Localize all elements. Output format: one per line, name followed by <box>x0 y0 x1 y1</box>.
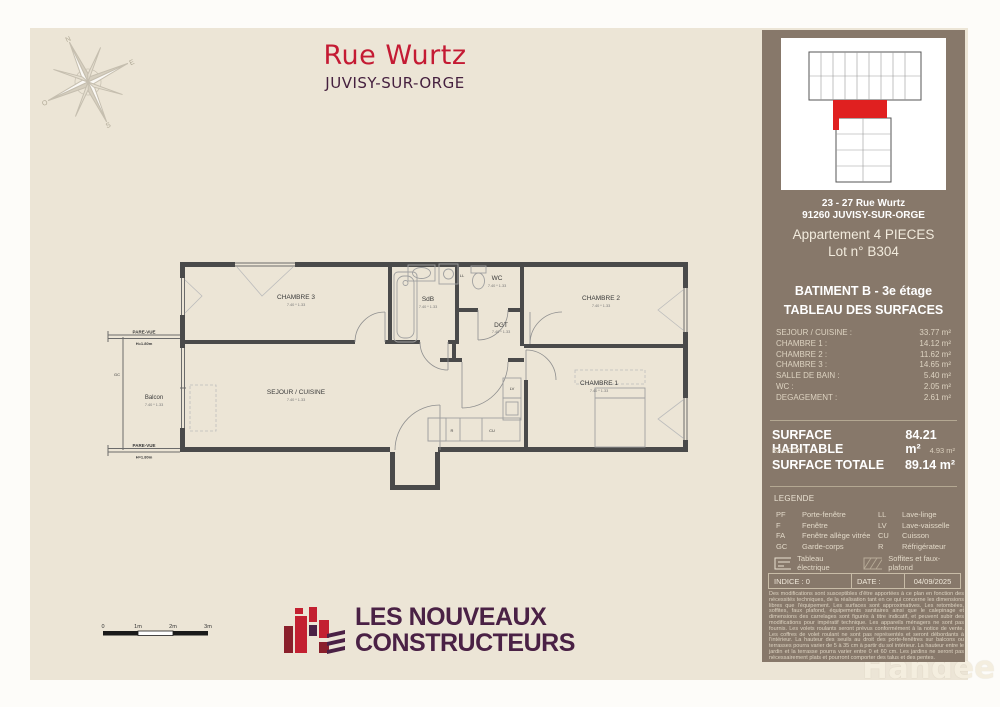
room-dims-wc: 7.40 * 1.33 <box>488 284 506 288</box>
logo-mark-icon <box>283 604 345 658</box>
apartment-type: Appartement 4 PIECES <box>762 226 965 243</box>
cu-label: CU <box>489 428 495 433</box>
table-row: WC :2.05 m² <box>776 382 951 393</box>
room-label-chambre2: CHAMBRE 2 <box>582 295 620 302</box>
legend-label: Réfrigérateur <box>902 542 954 553</box>
room-label-balcon: Balcon <box>145 395 163 401</box>
legend-label: Lave-linge <box>902 510 954 521</box>
compass-rose: N S E O <box>38 32 138 132</box>
pare-vue-bottom-label: PARE-VUE <box>133 443 156 448</box>
legend-code: GC <box>776 542 802 553</box>
date-label-cell: DATE : <box>851 574 904 588</box>
legend-code: R <box>878 542 902 553</box>
scale-tick-1: 1m <box>134 624 142 630</box>
compass-south-label: S <box>105 122 112 130</box>
panel-address-line2: 91260 JUVISY-SUR-ORGE <box>762 210 965 222</box>
balcon-label: BALCON : <box>772 446 807 455</box>
legend-title: LEGENDE <box>774 494 814 503</box>
developer-logo: LES NOUVEAUX CONSTRUCTEURS <box>283 604 575 658</box>
room-dims-sejour: 7.40 * 1.33 <box>287 398 305 402</box>
logo-line1: LES NOUVEAUX <box>355 604 575 630</box>
surface-totale-label: SURFACE TOTALE <box>772 458 884 472</box>
scale-bar: 0 1m 2m 3m <box>98 620 218 642</box>
soffit-hatch-icon <box>863 557 882 570</box>
legend-label: Porte-fenêtre <box>802 510 878 521</box>
surface-totale-value: 89.14 m² <box>905 458 955 472</box>
legend-label: Garde-corps <box>802 542 878 553</box>
soffit-label: Soffites et faux-plafond <box>888 554 954 572</box>
ll-label: LL <box>460 273 465 278</box>
legend-code: FA <box>776 531 802 542</box>
balcon-row: BALCON : 4.93 m² <box>772 446 955 455</box>
table-row: DEGAGEMENT :2.61 m² <box>776 393 951 404</box>
room-dims-chambre3: 7.40 * 1.33 <box>287 303 305 307</box>
panel-address-line1: 23 - 27 Rue Wurtz <box>762 198 965 210</box>
lv-label: LV <box>510 386 515 391</box>
room-dims-balcon: 7.40 * 1.33 <box>145 403 163 407</box>
scale-tick-3: 3m <box>204 624 212 630</box>
legend-label: Lave-vaisselle <box>902 521 954 532</box>
date-value: 04/09/2025 <box>914 577 952 586</box>
legend-code: CU <box>878 531 902 542</box>
fixtures <box>394 264 645 447</box>
r-label: R <box>451 428 454 433</box>
surface-table: SEJOUR / CUISINE :33.77 m² CHAMBRE 1 :14… <box>776 328 951 404</box>
legend-label: Fenêtre <box>802 521 878 532</box>
table-row: SEJOUR / CUISINE :33.77 m² <box>776 328 951 339</box>
indice-cell: INDICE : 0 <box>769 574 851 588</box>
fridge-icon <box>428 418 446 441</box>
legend-code: LV <box>878 521 902 532</box>
divider <box>770 420 957 421</box>
toilet-icon <box>471 266 486 273</box>
surface-totale-row: SURFACE TOTALE 89.14 m² <box>772 458 955 472</box>
room-label-chambre1: CHAMBRE 1 <box>580 380 618 387</box>
legend-code: PF <box>776 510 802 521</box>
room-label-sdb: SdB <box>422 296 434 303</box>
keyplan-box <box>781 38 946 190</box>
street-title: Rue Wurtz <box>240 40 550 71</box>
pare-vue-bottom-height: H=1.80m <box>136 455 153 460</box>
table-row: CHAMBRE 2 :11.62 m² <box>776 350 951 361</box>
room-dims-chambre2: 7.40 * 1.33 <box>592 304 610 308</box>
compass-north-label: N <box>65 36 73 44</box>
pare-vue-top-label: PARE-VUE <box>133 330 156 335</box>
pare-vue-top-height: H=1.80m <box>136 341 153 346</box>
room-label-wc: WC <box>492 275 503 282</box>
room-dims-dgt: 7.40 * 1.33 <box>492 330 510 334</box>
kitchen-counter <box>428 418 520 441</box>
legend-grid: PFPorte-fenêtre LLLave-linge FFenêtre LV… <box>776 510 954 552</box>
room-label-chambre3: CHAMBRE 3 <box>277 294 315 301</box>
table-row: SALLE DE BAIN :5.40 m² <box>776 371 951 382</box>
divider <box>770 486 957 487</box>
compass-east-label: E <box>129 59 136 67</box>
legend-label: Cuisson <box>902 531 954 542</box>
room-label-dgt: DGT <box>494 322 508 329</box>
building-floor: BATIMENT B - 3e étage <box>762 282 965 301</box>
balcony-outline <box>108 331 180 456</box>
legend-code: LL <box>878 510 902 521</box>
electrical-panel-label: Tableau électrique <box>797 554 849 572</box>
electrical-panel-icon <box>774 557 791 570</box>
date-value-cell: 04/09/2025 <box>904 574 960 588</box>
bed-icon <box>595 388 645 447</box>
disclaimer-text: Des modifications sont susceptibles d'êt… <box>766 590 967 664</box>
indice-date-row: INDICE : 0 DATE : 04/09/2025 <box>768 573 961 589</box>
logo-line2: CONSTRUCTEURS <box>355 630 575 656</box>
city-subtitle: JUVISY-SUR-ORGE <box>240 74 550 92</box>
lot-number: Lot n° B304 <box>762 243 965 260</box>
gc-label: GC <box>114 372 120 377</box>
balcon-value: 4.93 m² <box>930 446 955 455</box>
surface-table-title: TABLEAU DES SURFACES <box>762 301 965 320</box>
scale-tick-2: 2m <box>169 624 177 630</box>
scale-tick-0: 0 <box>101 624 104 630</box>
window-swing-marks <box>185 267 683 438</box>
date-label: DATE : <box>857 577 881 586</box>
legend-label: Fenêtre allège vitrée <box>802 531 878 542</box>
room-dims-sdb: 7.40 * 1.33 <box>419 305 437 309</box>
legend-code: F <box>776 521 802 532</box>
keyplan-drawing <box>781 38 946 190</box>
info-panel: 23 - 27 Rue Wurtz 91260 JUVISY-SUR-ORGE … <box>762 30 965 662</box>
table-row: CHAMBRE 3 :14.65 m² <box>776 360 951 371</box>
furniture-dashed <box>190 370 645 431</box>
room-dims-chambre1: 7.40 * 1.33 <box>590 389 608 393</box>
indice-label: INDICE : <box>774 577 804 586</box>
room-label-sejour: SEJOUR / CUISINE <box>267 389 326 396</box>
sheet-title: Rue Wurtz JUVISY-SUR-ORGE <box>240 40 550 92</box>
indice-value: 0 <box>806 577 810 586</box>
table-row: CHAMBRE 1 :14.12 m² <box>776 339 951 350</box>
floor-plan: CHAMBRE 3 7.40 * 1.33 SdB 7.40 * 1.33 WC… <box>100 250 700 500</box>
